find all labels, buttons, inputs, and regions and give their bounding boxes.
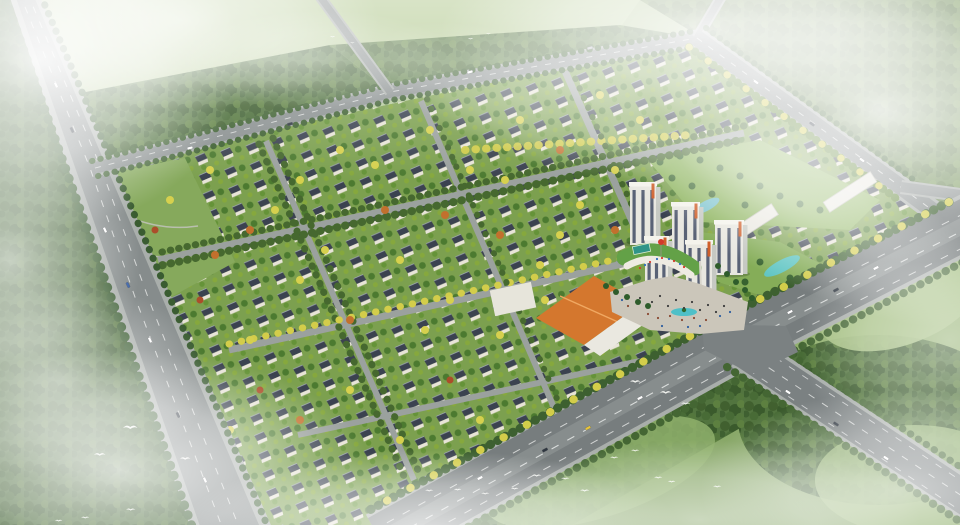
accent-tree-yellow (396, 256, 404, 264)
accent-tree-red (447, 377, 454, 384)
plaza-people (661, 325, 663, 327)
plaza-palm (742, 287, 748, 293)
accent-tree-yellow (446, 296, 454, 304)
plaza-palm (645, 303, 651, 309)
plaza-palm (624, 294, 630, 300)
accent-tree-yellow (346, 386, 354, 394)
plaza-people (675, 299, 677, 301)
accent-tree-yellow (396, 436, 404, 444)
plaza-people (647, 313, 649, 315)
accent-tree-yellow (246, 336, 254, 344)
accent-tree-orange (441, 211, 449, 219)
facade-banner (673, 260, 675, 262)
plaza-people (729, 311, 731, 313)
aerial-rendering (0, 0, 960, 525)
aerial-rendering-stage (0, 0, 960, 525)
plaza-people (705, 319, 707, 321)
plaza-people (693, 317, 695, 319)
accent-tree-yellow (321, 246, 329, 254)
plaza-palm (635, 299, 641, 305)
facade-banner (683, 266, 685, 268)
park-tree (742, 279, 749, 286)
plaza-people (681, 319, 683, 321)
accent-tree-yellow (421, 326, 429, 334)
accent-tree-orange (496, 231, 504, 239)
plaza-people (719, 315, 721, 317)
plaza-people (699, 309, 701, 311)
plaza-people (659, 295, 661, 297)
accent-tree-yellow (166, 196, 174, 204)
facade-banner (679, 263, 681, 265)
plaza-palm (733, 279, 739, 285)
plaza-people (667, 305, 669, 307)
tower-accent (708, 242, 711, 257)
accent-tree-red (152, 227, 159, 234)
facade-banner (639, 267, 641, 269)
plaza-palm (724, 271, 730, 277)
plaza-people (651, 301, 653, 303)
accent-tree-yellow (476, 416, 484, 424)
plaza-people (657, 317, 659, 319)
plaza-people (687, 326, 689, 328)
plaza-people (715, 311, 717, 313)
accent-tree-yellow (541, 296, 549, 304)
plaza-palm (715, 263, 721, 269)
accent-tree-orange (381, 206, 389, 214)
accent-tree-orange (611, 226, 619, 234)
plaza-palm (603, 283, 609, 289)
accent-tree-yellow (556, 231, 564, 239)
accent-tree-yellow (576, 201, 584, 209)
facade-banner (661, 257, 663, 259)
facade-banner (644, 264, 646, 266)
fog-patch (180, 10, 460, 110)
plaza-people (691, 301, 693, 303)
accent-tree-red (197, 297, 204, 304)
plaza-people (683, 307, 685, 309)
accent-tree-orange (346, 316, 354, 324)
accent-tree-orange (211, 251, 219, 259)
plaza-palm (613, 289, 619, 295)
plaza-people (627, 305, 629, 307)
plaza-people (669, 315, 671, 317)
accent-tree-yellow (496, 331, 504, 339)
facade-banner (649, 261, 651, 263)
red-balloon (658, 239, 664, 245)
plaza-palm (749, 295, 755, 301)
accent-tree-yellow (296, 276, 304, 284)
facade-banner (668, 258, 670, 260)
facade-banner (656, 258, 658, 260)
plaza-people (621, 299, 623, 301)
accent-tree-orange (246, 226, 254, 234)
plaza-people (639, 297, 641, 299)
accent-tree-yellow (271, 206, 279, 214)
plaza-people (723, 305, 725, 307)
plaza-people (699, 325, 701, 327)
plaza-people (707, 304, 709, 306)
tower-windows (633, 190, 636, 243)
accent-tree-yellow (536, 261, 544, 269)
